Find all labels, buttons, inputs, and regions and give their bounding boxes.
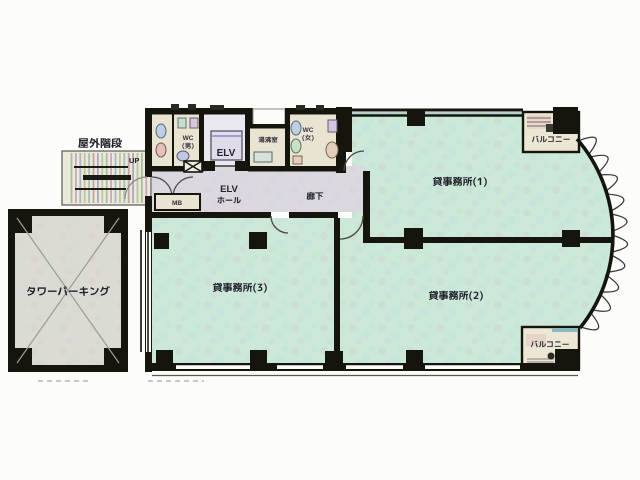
svg-text:MB: MB — [172, 200, 182, 207]
svg-text:ELV: ELV — [220, 184, 238, 195]
svg-text:WC: WC — [183, 135, 194, 142]
svg-text:ELV: ELV — [217, 148, 236, 159]
svg-text:UP: UP — [129, 156, 139, 165]
svg-text:WC: WC — [303, 127, 314, 134]
